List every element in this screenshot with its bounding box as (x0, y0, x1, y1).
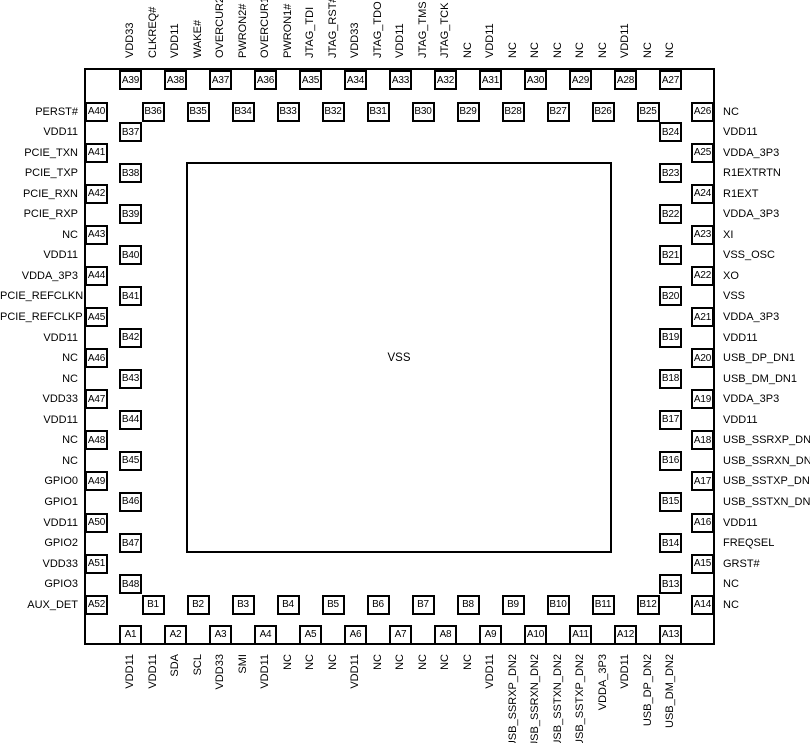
pin-A41: A41 (85, 143, 108, 163)
pin-B35: B35 (187, 102, 210, 122)
pin-number: B8 (462, 599, 474, 610)
pin-number: A23 (694, 229, 711, 240)
pin-B6: B6 (367, 595, 390, 615)
pin-A45: A45 (85, 307, 108, 327)
pin-number: A39 (122, 75, 139, 86)
pin-A9: A9 (479, 625, 502, 645)
pin-number: B29 (459, 106, 476, 117)
pin-A31: A31 (479, 70, 502, 90)
pin-signal-label-A5: NC (304, 654, 317, 670)
pin-number: A16 (694, 517, 711, 528)
pin-signal-label-B31: JTAG_TDO (372, 1, 385, 58)
pin-signal-label-A23: XI (723, 228, 733, 242)
pin-signal-label-B7: NC (417, 654, 430, 670)
pin-signal-label-B28: NC (507, 42, 520, 58)
pin-number: B38 (122, 168, 139, 179)
pin-A43: A43 (85, 225, 108, 245)
pin-signal-label-A39: VDD33 (124, 23, 137, 58)
pin-A25: A25 (691, 143, 714, 163)
pin-number: B5 (327, 599, 339, 610)
pin-A29: A29 (569, 70, 592, 90)
pin-signal-label-A27: NC (664, 42, 677, 58)
pin-B5: B5 (322, 595, 345, 615)
pin-number: A49 (88, 476, 105, 487)
die-vss-region: VSS (186, 162, 612, 553)
pin-number: B20 (662, 291, 679, 302)
pin-number: A5 (305, 629, 317, 640)
pin-signal-label-B33: PWRON1# (282, 4, 295, 58)
pin-B11: B11 (592, 595, 615, 615)
pin-number: A25 (694, 147, 711, 158)
pin-signal-label-B10: USB_SSTXN_DN2 (552, 654, 565, 743)
pin-A6: A6 (344, 625, 367, 645)
die-center-label: VSS (387, 352, 410, 364)
pin-signal-label-A15: GRST# (723, 557, 760, 571)
pin-number: A21 (694, 312, 711, 323)
pin-signal-label-B45: NC (0, 454, 78, 468)
pin-B32: B32 (322, 102, 345, 122)
pin-signal-label-A46: NC (0, 351, 78, 365)
pin-number: A20 (694, 353, 711, 364)
pin-signal-label-A38: VDD11 (169, 23, 182, 58)
pin-number: A7 (395, 629, 407, 640)
pin-B30: B30 (412, 102, 435, 122)
pin-B3: B3 (232, 595, 255, 615)
pin-number: A30 (527, 75, 544, 86)
chip-pinout-diagram: VSS A39VDD33B36CLKREQ#A38VDD11B35WAKE#A3… (0, 0, 810, 743)
pin-number: A48 (88, 435, 105, 446)
pin-A24: A24 (691, 184, 714, 204)
pin-signal-label-A22: XO (723, 269, 739, 283)
pin-A34: A34 (344, 70, 367, 90)
pin-A38: A38 (164, 70, 187, 90)
pin-B37: B37 (119, 122, 142, 142)
pin-signal-label-B3: SMI (237, 654, 250, 674)
pin-B48: B48 (119, 574, 142, 594)
pin-signal-label-A50: VDD11 (0, 516, 78, 530)
pin-A5: A5 (299, 625, 322, 645)
pin-number: B21 (662, 250, 679, 261)
pin-number: B7 (417, 599, 429, 610)
pin-signal-label-A26: NC (723, 105, 739, 119)
pin-number: B34 (234, 106, 251, 117)
pin-A22: A22 (691, 266, 714, 286)
pin-A37: A37 (209, 70, 232, 90)
pin-B42: B42 (119, 328, 142, 348)
pin-A46: A46 (85, 348, 108, 368)
pin-number: B1 (147, 599, 159, 610)
pin-number: A3 (215, 629, 227, 640)
pin-number: B30 (414, 106, 431, 117)
pin-B21: B21 (659, 245, 682, 265)
pin-B2: B2 (187, 595, 210, 615)
pin-A51: A51 (85, 554, 108, 574)
pin-signal-label-A30: NC (529, 42, 542, 58)
pin-number: A44 (88, 270, 105, 281)
pin-A20: A20 (691, 348, 714, 368)
pin-B44: B44 (119, 410, 142, 430)
pin-number: A40 (88, 106, 105, 117)
pin-A32: A32 (434, 70, 457, 90)
pin-signal-label-A10: USB_SSRXN_DN2 (529, 654, 542, 743)
pin-signal-label-B19: VDD11 (723, 331, 758, 345)
pin-signal-label-B2: SCL (192, 654, 205, 675)
pin-signal-label-B20: VSS (723, 289, 745, 303)
pin-signal-label-B30: JTAG_TMS (417, 1, 430, 58)
pin-number: B45 (122, 455, 139, 466)
pin-signal-label-B11: VDDA_3P3 (597, 654, 610, 710)
pin-signal-label-B25: NC (642, 42, 655, 58)
pin-number: B28 (504, 106, 521, 117)
pin-signal-label-A32: JTAG_TCK (439, 3, 452, 58)
pin-number: A34 (347, 75, 364, 86)
pin-signal-label-A37: OVERCUR2# (214, 0, 227, 58)
pin-number: A18 (694, 435, 711, 446)
pin-number: B27 (549, 106, 566, 117)
pin-signal-label-A12: VDD11 (619, 654, 632, 689)
pin-B25: B25 (637, 102, 660, 122)
pin-number: A29 (572, 75, 589, 86)
pin-B19: B19 (659, 328, 682, 348)
pin-A42: A42 (85, 184, 108, 204)
pin-B29: B29 (457, 102, 480, 122)
pin-signal-label-A42: PCIE_RXN (0, 187, 78, 201)
pin-signal-label-B44: VDD11 (0, 413, 78, 427)
pin-signal-label-B13: NC (723, 577, 739, 591)
pin-A21: A21 (691, 307, 714, 327)
pin-signal-label-B39: PCIE_RXP (0, 207, 78, 221)
pin-signal-label-A4: VDD11 (259, 654, 272, 689)
pin-number: A22 (694, 270, 711, 281)
pin-number: B16 (662, 455, 679, 466)
pin-B27: B27 (547, 102, 570, 122)
pin-number: A8 (440, 629, 452, 640)
pin-number: B18 (662, 373, 679, 384)
pin-number: B19 (662, 332, 679, 343)
pin-signal-label-B38: PCIE_TXP (0, 166, 78, 180)
pin-number: A11 (572, 629, 588, 640)
pin-signal-label-A52: AUX_DET (0, 598, 78, 612)
pin-number: B47 (122, 538, 139, 549)
pin-number: A26 (694, 106, 711, 117)
pin-number: A50 (88, 517, 105, 528)
pin-A14: A14 (691, 595, 714, 615)
pin-number: A1 (125, 629, 137, 640)
pin-signal-label-A20: USB_DP_DN1 (723, 351, 795, 365)
pin-B8: B8 (457, 595, 480, 615)
pin-signal-label-A36: OVERCUR1# (259, 0, 272, 58)
pin-number: B10 (549, 599, 566, 610)
pin-signal-label-A7: NC (394, 654, 407, 670)
pin-signal-label-A40: PERST# (0, 105, 78, 119)
pin-number: A4 (260, 629, 272, 640)
pin-number: A14 (694, 599, 711, 610)
pin-signal-label-A8: NC (439, 654, 452, 670)
pin-signal-label-B16: USB_SSRXN_DN1 (723, 454, 810, 468)
pin-A10: A10 (524, 625, 547, 645)
pin-B24: B24 (659, 122, 682, 142)
pin-B40: B40 (119, 245, 142, 265)
pin-signal-label-B42: VDD11 (0, 331, 78, 345)
pin-A49: A49 (85, 471, 108, 491)
pin-signal-label-A17: USB_SSTXP_DN1 (723, 474, 810, 488)
pin-signal-label-A11: USB_SSTXP_DN2 (574, 654, 587, 743)
pin-signal-label-A34: VDD33 (349, 23, 362, 58)
pin-A39: A39 (119, 70, 142, 90)
pin-signal-label-B41: PCIE_REFCLKN (0, 289, 78, 303)
pin-number: A35 (302, 75, 319, 86)
pin-signal-label-A35: JTAG_TDI (304, 7, 317, 58)
pin-number: B22 (662, 209, 679, 220)
pin-number: B39 (122, 209, 139, 220)
pin-number: B17 (662, 414, 679, 425)
pin-number: B9 (507, 599, 519, 610)
pin-signal-label-A13: USB_DM_DN2 (664, 654, 677, 728)
pin-signal-label-B1: VDD11 (147, 654, 160, 689)
pin-signal-label-B48: GPIO3 (0, 577, 78, 591)
pin-signal-label-A19: VDDA_3P3 (723, 392, 779, 406)
pin-number: B32 (324, 106, 341, 117)
pin-signal-label-B37: VDD11 (0, 125, 78, 139)
pin-number: A2 (170, 629, 182, 640)
pin-signal-label-A51: VDD33 (0, 557, 78, 571)
pin-B10: B10 (547, 595, 570, 615)
pin-number: B2 (192, 599, 204, 610)
pin-signal-label-B47: GPIO2 (0, 536, 78, 550)
pin-signal-label-A21: VDDA_3P3 (723, 310, 779, 324)
pin-A27: A27 (659, 70, 682, 90)
pin-number: B35 (189, 106, 206, 117)
pin-A11: A11 (569, 625, 592, 645)
pin-signal-label-A6: VDD11 (349, 654, 362, 689)
pin-A4: A4 (254, 625, 277, 645)
pin-A36: A36 (254, 70, 277, 90)
pin-B41: B41 (119, 286, 142, 306)
pin-signal-label-A1: VDD11 (124, 654, 137, 689)
pin-B18: B18 (659, 369, 682, 389)
pin-signal-label-B21: VSS_OSC (723, 248, 775, 262)
pin-B13: B13 (659, 574, 682, 594)
pin-B9: B9 (502, 595, 525, 615)
pin-number: B4 (282, 599, 294, 610)
pin-number: A6 (350, 629, 362, 640)
pin-B43: B43 (119, 369, 142, 389)
pin-signal-label-A45: PCIE_REFCLKP (0, 310, 78, 324)
pin-signal-label-B43: NC (0, 372, 78, 386)
pin-B28: B28 (502, 102, 525, 122)
pin-A16: A16 (691, 513, 714, 533)
pin-number: B33 (279, 106, 296, 117)
pin-number: A51 (88, 558, 105, 569)
pin-B16: B16 (659, 451, 682, 471)
pin-number: A13 (662, 629, 679, 640)
pin-number: B43 (122, 373, 139, 384)
pin-signal-label-B36: CLKREQ# (147, 7, 160, 58)
pin-B20: B20 (659, 286, 682, 306)
pin-signal-label-B27: NC (552, 42, 565, 58)
pin-number: A43 (88, 229, 105, 240)
pin-signal-label-A29: NC (574, 42, 587, 58)
pin-signal-label-A31: VDD11 (484, 23, 497, 58)
pin-A2: A2 (164, 625, 187, 645)
pin-signal-label-B40: VDD11 (0, 248, 78, 262)
pin-number: B14 (662, 538, 679, 549)
pin-A15: A15 (691, 554, 714, 574)
pin-signal-label-B29: NC (462, 42, 475, 58)
pin-A23: A23 (691, 225, 714, 245)
pin-signal-label-A33: VDD11 (394, 23, 407, 58)
pin-number: A10 (527, 629, 544, 640)
pin-signal-label-B14: FREQSEL (723, 536, 774, 550)
pin-number: A12 (617, 629, 634, 640)
pin-number: B12 (639, 599, 656, 610)
pin-number: A41 (88, 147, 105, 158)
pin-number: B46 (122, 496, 139, 507)
pin-signal-label-B8: NC (462, 654, 475, 670)
pin-A28: A28 (614, 70, 637, 90)
pin-number: B25 (639, 106, 656, 117)
pin-signal-label-A16: VDD11 (723, 516, 758, 530)
pin-signal-label-A3: VDD33 (214, 654, 227, 689)
pin-signal-label-B5: NC (327, 654, 340, 670)
pin-number: A24 (694, 188, 711, 199)
pin-B23: B23 (659, 163, 682, 183)
pin-number: A52 (88, 599, 105, 610)
pin-B26: B26 (592, 102, 615, 122)
pin-number: B48 (122, 579, 139, 590)
pin-A50: A50 (85, 513, 108, 533)
pin-B17: B17 (659, 410, 682, 430)
pin-signal-label-B24: VDD11 (723, 125, 758, 139)
pin-B36: B36 (142, 102, 165, 122)
pin-number: B37 (122, 127, 139, 138)
pin-number: B41 (122, 291, 139, 302)
pin-A35: A35 (299, 70, 322, 90)
pin-A12: A12 (614, 625, 637, 645)
pin-A48: A48 (85, 430, 108, 450)
pin-signal-label-A18: USB_SSRXP_DN1 (723, 433, 810, 447)
pin-number: A47 (88, 394, 105, 405)
pin-A44: A44 (85, 266, 108, 286)
pin-A17: A17 (691, 471, 714, 491)
pin-number: A46 (88, 353, 105, 364)
pin-number: A31 (482, 75, 499, 86)
pin-signal-label-B34: PWRON2# (237, 4, 250, 58)
pin-A19: A19 (691, 389, 714, 409)
pin-number: B31 (369, 106, 386, 117)
pin-signal-label-B6: NC (372, 654, 385, 670)
pin-signal-label-B18: USB_DM_DN1 (723, 372, 797, 386)
pin-number: B6 (372, 599, 384, 610)
pin-signal-label-A48: NC (0, 433, 78, 447)
pin-signal-label-A24: R1EXT (723, 187, 758, 201)
pin-number: B11 (595, 599, 611, 610)
pin-number: B15 (662, 496, 679, 507)
pin-signal-label-A28: VDD11 (619, 23, 632, 58)
pin-number: A28 (617, 75, 634, 86)
pin-number: B24 (662, 127, 679, 138)
pin-number: B36 (144, 106, 161, 117)
pin-signal-label-A25: VDDA_3P3 (723, 146, 779, 160)
pin-number: B40 (122, 250, 139, 261)
pin-number: B23 (662, 168, 679, 179)
pin-signal-label-B32: JTAG_RST# (327, 0, 340, 58)
pin-number: A36 (257, 75, 274, 86)
pin-B39: B39 (119, 204, 142, 224)
pin-number: A33 (392, 75, 409, 86)
pin-number: A19 (694, 394, 711, 405)
pin-signal-label-B15: USB_SSTXN_DN1 (723, 495, 810, 509)
pin-number: A32 (437, 75, 454, 86)
pin-A7: A7 (389, 625, 412, 645)
pin-number: A37 (212, 75, 229, 86)
pin-signal-label-A43: NC (0, 228, 78, 242)
pin-A52: A52 (85, 595, 108, 615)
pin-A1: A1 (119, 625, 142, 645)
pin-signal-label-A47: VDD33 (0, 392, 78, 406)
pin-signal-label-A14: NC (723, 598, 739, 612)
pin-signal-label-A2: SDA (169, 654, 182, 677)
pin-number: B44 (122, 414, 139, 425)
pin-number: B13 (662, 579, 679, 590)
pin-signal-label-B26: NC (597, 42, 610, 58)
pin-B1: B1 (142, 595, 165, 615)
pin-B7: B7 (412, 595, 435, 615)
pin-A18: A18 (691, 430, 714, 450)
pin-A30: A30 (524, 70, 547, 90)
pin-number: B3 (237, 599, 249, 610)
pin-number: B42 (122, 332, 139, 343)
pin-number: A45 (88, 312, 105, 323)
pin-number: A9 (485, 629, 497, 640)
pin-B34: B34 (232, 102, 255, 122)
pin-number: A17 (694, 476, 711, 487)
pin-signal-label-B22: VDDA_3P3 (723, 207, 779, 221)
pin-A3: A3 (209, 625, 232, 645)
pin-B38: B38 (119, 163, 142, 183)
pin-B45: B45 (119, 451, 142, 471)
pin-B15: B15 (659, 492, 682, 512)
pin-B46: B46 (119, 492, 142, 512)
pin-B33: B33 (277, 102, 300, 122)
pin-signal-label-B46: GPIO1 (0, 495, 78, 509)
pin-number: A27 (662, 75, 679, 86)
pin-signal-label-A49: GPIO0 (0, 474, 78, 488)
pin-A8: A8 (434, 625, 457, 645)
pin-signal-label-B17: VDD11 (723, 413, 758, 427)
pin-B4: B4 (277, 595, 300, 615)
pin-signal-label-B35: WAKE# (192, 20, 205, 58)
pin-A26: A26 (691, 102, 714, 122)
pin-signal-label-B4: NC (282, 654, 295, 670)
pin-B14: B14 (659, 533, 682, 553)
pin-A47: A47 (85, 389, 108, 409)
pin-A13: A13 (659, 625, 682, 645)
pin-signal-label-A44: VDDA_3P3 (0, 269, 78, 283)
pin-B31: B31 (367, 102, 390, 122)
pin-B12: B12 (637, 595, 660, 615)
pin-A40: A40 (85, 102, 108, 122)
pin-signal-label-B9: USB_SSRXP_DN2 (507, 654, 520, 743)
pin-number: B26 (594, 106, 611, 117)
pin-signal-label-B12: USB_DP_DN2 (642, 654, 655, 726)
pin-signal-label-A41: PCIE_TXN (0, 146, 78, 160)
pin-signal-label-B23: R1EXTRTN (723, 166, 781, 180)
pin-signal-label-A9: VDD11 (484, 654, 497, 689)
pin-B22: B22 (659, 204, 682, 224)
pin-A33: A33 (389, 70, 412, 90)
pin-number: A38 (167, 75, 184, 86)
